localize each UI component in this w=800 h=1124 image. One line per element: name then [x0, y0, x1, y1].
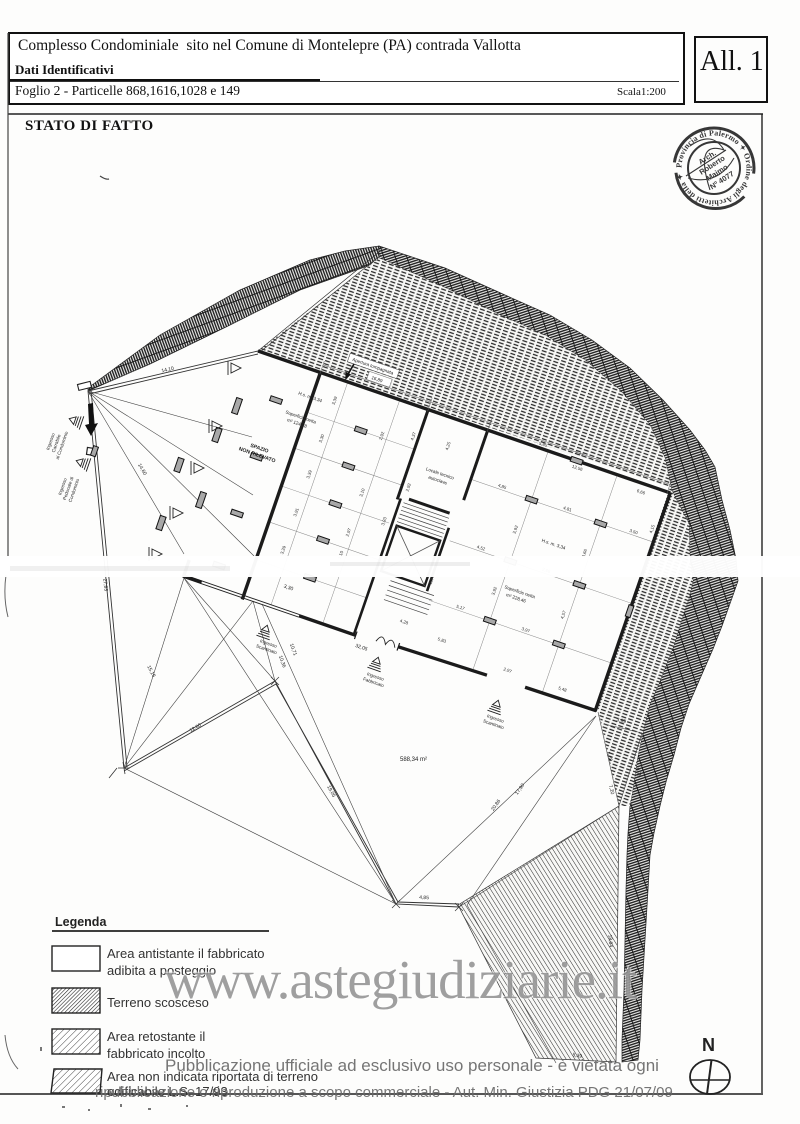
svg-text:10,71: 10,71 [288, 643, 298, 657]
svg-text:4,28: 4,28 [399, 618, 409, 626]
svg-text:588,34 m²: 588,34 m² [400, 757, 427, 763]
svg-text:3,10: 3,10 [358, 487, 366, 497]
svg-text:3,92: 3,92 [490, 586, 498, 596]
svg-text:Area retostante il: Area retostante il [107, 1029, 205, 1044]
svg-text:N: N [702, 1035, 715, 1055]
svg-text:3,30: 3,30 [318, 433, 326, 443]
svg-text:7,20: 7,20 [607, 784, 615, 795]
svg-text:3,39: 3,39 [331, 395, 339, 405]
svg-text:20,86: 20,86 [490, 798, 502, 812]
svg-text:2,92: 2,92 [405, 482, 413, 492]
svg-text:19,05: 19,05 [325, 785, 336, 799]
svg-text:3,39: 3,39 [279, 545, 287, 555]
svg-text:27,83: 27,83 [101, 578, 108, 591]
svg-text:18,84: 18,84 [606, 934, 613, 947]
svg-text:2,97: 2,97 [503, 666, 513, 674]
svg-text:3,92: 3,92 [512, 524, 520, 534]
svg-text:Legenda: Legenda [55, 915, 107, 929]
svg-text:14,60: 14,60 [136, 463, 148, 477]
svg-text:6,66: 6,66 [636, 488, 646, 496]
svg-text:3,91: 3,91 [292, 507, 300, 517]
svg-text:5,48: 5,48 [558, 685, 568, 693]
svg-text:17,90: 17,90 [514, 782, 526, 796]
svg-text:4,85: 4,85 [419, 895, 429, 902]
svg-text:4,37: 4,37 [409, 431, 417, 441]
svg-text:5,83: 5,83 [437, 636, 447, 644]
svg-text:4,25: 4,25 [444, 441, 452, 451]
svg-text:14,10: 14,10 [161, 366, 175, 375]
svg-text:3,93: 3,93 [380, 516, 388, 526]
svg-text:15,15: 15,15 [145, 665, 156, 679]
svg-text:3,39: 3,39 [305, 469, 313, 479]
svg-text:H.s. m. 3,34: H.s. m. 3,34 [541, 538, 566, 551]
svg-text:32,05: 32,05 [354, 643, 368, 653]
svg-text:4,57: 4,57 [560, 609, 568, 619]
svg-text:2,97: 2,97 [345, 527, 353, 537]
svg-text:3,30: 3,30 [283, 584, 294, 593]
